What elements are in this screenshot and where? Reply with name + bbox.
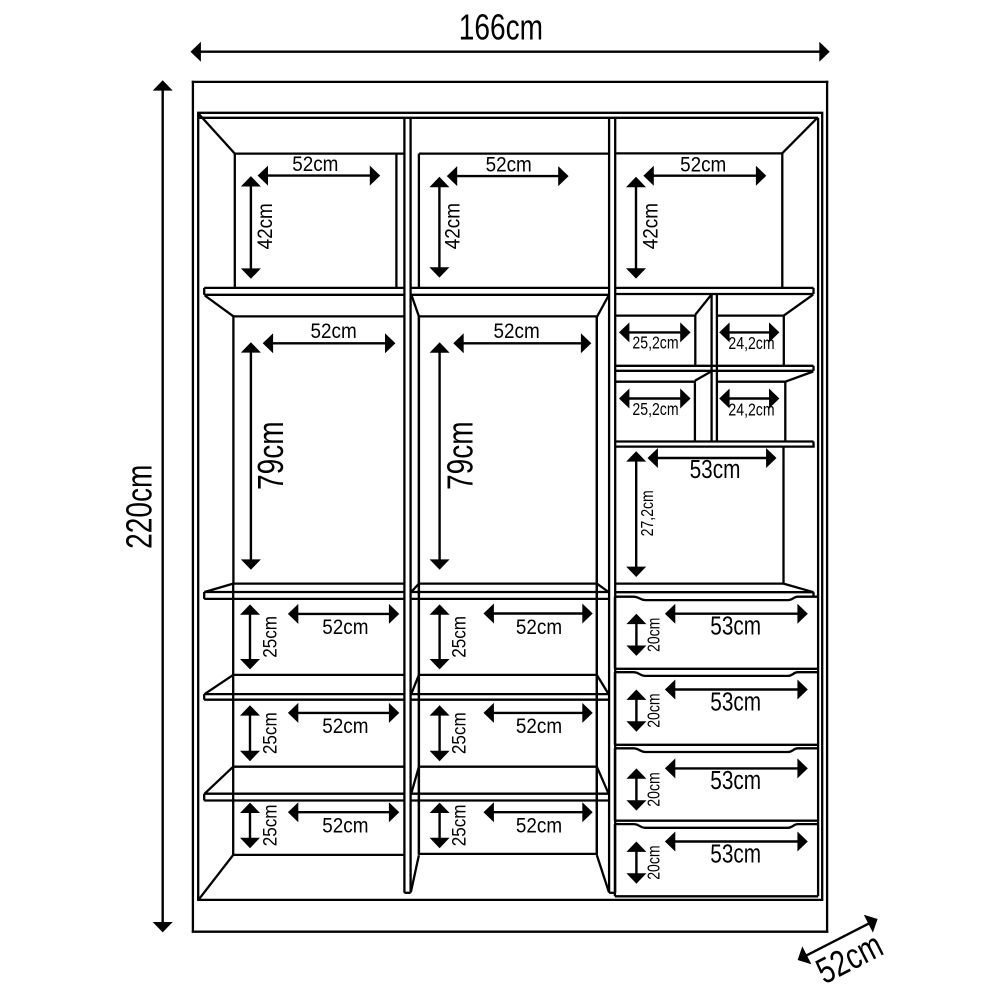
svg-text:25cm: 25cm — [260, 616, 281, 658]
svg-text:24,2cm: 24,2cm — [728, 335, 774, 354]
svg-text:166cm: 166cm — [459, 7, 543, 47]
svg-text:52cm: 52cm — [493, 320, 539, 343]
svg-text:25,2cm: 25,2cm — [632, 401, 678, 420]
svg-text:24,2cm: 24,2cm — [728, 401, 774, 420]
svg-text:27,2cm: 27,2cm — [639, 490, 658, 536]
svg-text:53cm: 53cm — [710, 611, 761, 640]
svg-text:220cm: 220cm — [119, 465, 159, 549]
svg-text:25cm: 25cm — [449, 712, 470, 754]
svg-text:25cm: 25cm — [260, 712, 281, 754]
svg-text:53cm: 53cm — [710, 839, 761, 868]
svg-text:52cm: 52cm — [310, 320, 356, 343]
svg-text:52cm: 52cm — [516, 815, 562, 838]
svg-text:42cm: 42cm — [639, 203, 662, 249]
svg-text:25cm: 25cm — [260, 805, 281, 847]
svg-text:20cm: 20cm — [645, 772, 664, 806]
svg-text:52cm: 52cm — [516, 616, 562, 639]
svg-text:52cm: 52cm — [322, 715, 368, 738]
svg-text:20cm: 20cm — [645, 845, 664, 879]
svg-text:52cm: 52cm — [292, 153, 338, 176]
svg-text:79cm: 79cm — [440, 421, 480, 490]
svg-text:53cm: 53cm — [710, 766, 761, 795]
svg-text:20cm: 20cm — [645, 618, 664, 652]
svg-text:52cm: 52cm — [322, 616, 368, 639]
svg-text:25,2cm: 25,2cm — [632, 334, 678, 353]
svg-text:52cm: 52cm — [680, 154, 726, 177]
svg-text:42cm: 42cm — [254, 203, 277, 249]
svg-text:25cm: 25cm — [449, 616, 470, 658]
svg-text:53cm: 53cm — [710, 687, 761, 716]
svg-text:20cm: 20cm — [645, 693, 664, 727]
svg-text:53cm: 53cm — [690, 455, 741, 484]
svg-text:52cm: 52cm — [486, 154, 532, 177]
svg-text:52cm: 52cm — [810, 925, 889, 992]
svg-text:52cm: 52cm — [322, 815, 368, 838]
svg-text:79cm: 79cm — [251, 421, 291, 490]
svg-text:52cm: 52cm — [516, 715, 562, 738]
svg-text:25cm: 25cm — [449, 805, 470, 847]
svg-text:42cm: 42cm — [442, 203, 465, 249]
